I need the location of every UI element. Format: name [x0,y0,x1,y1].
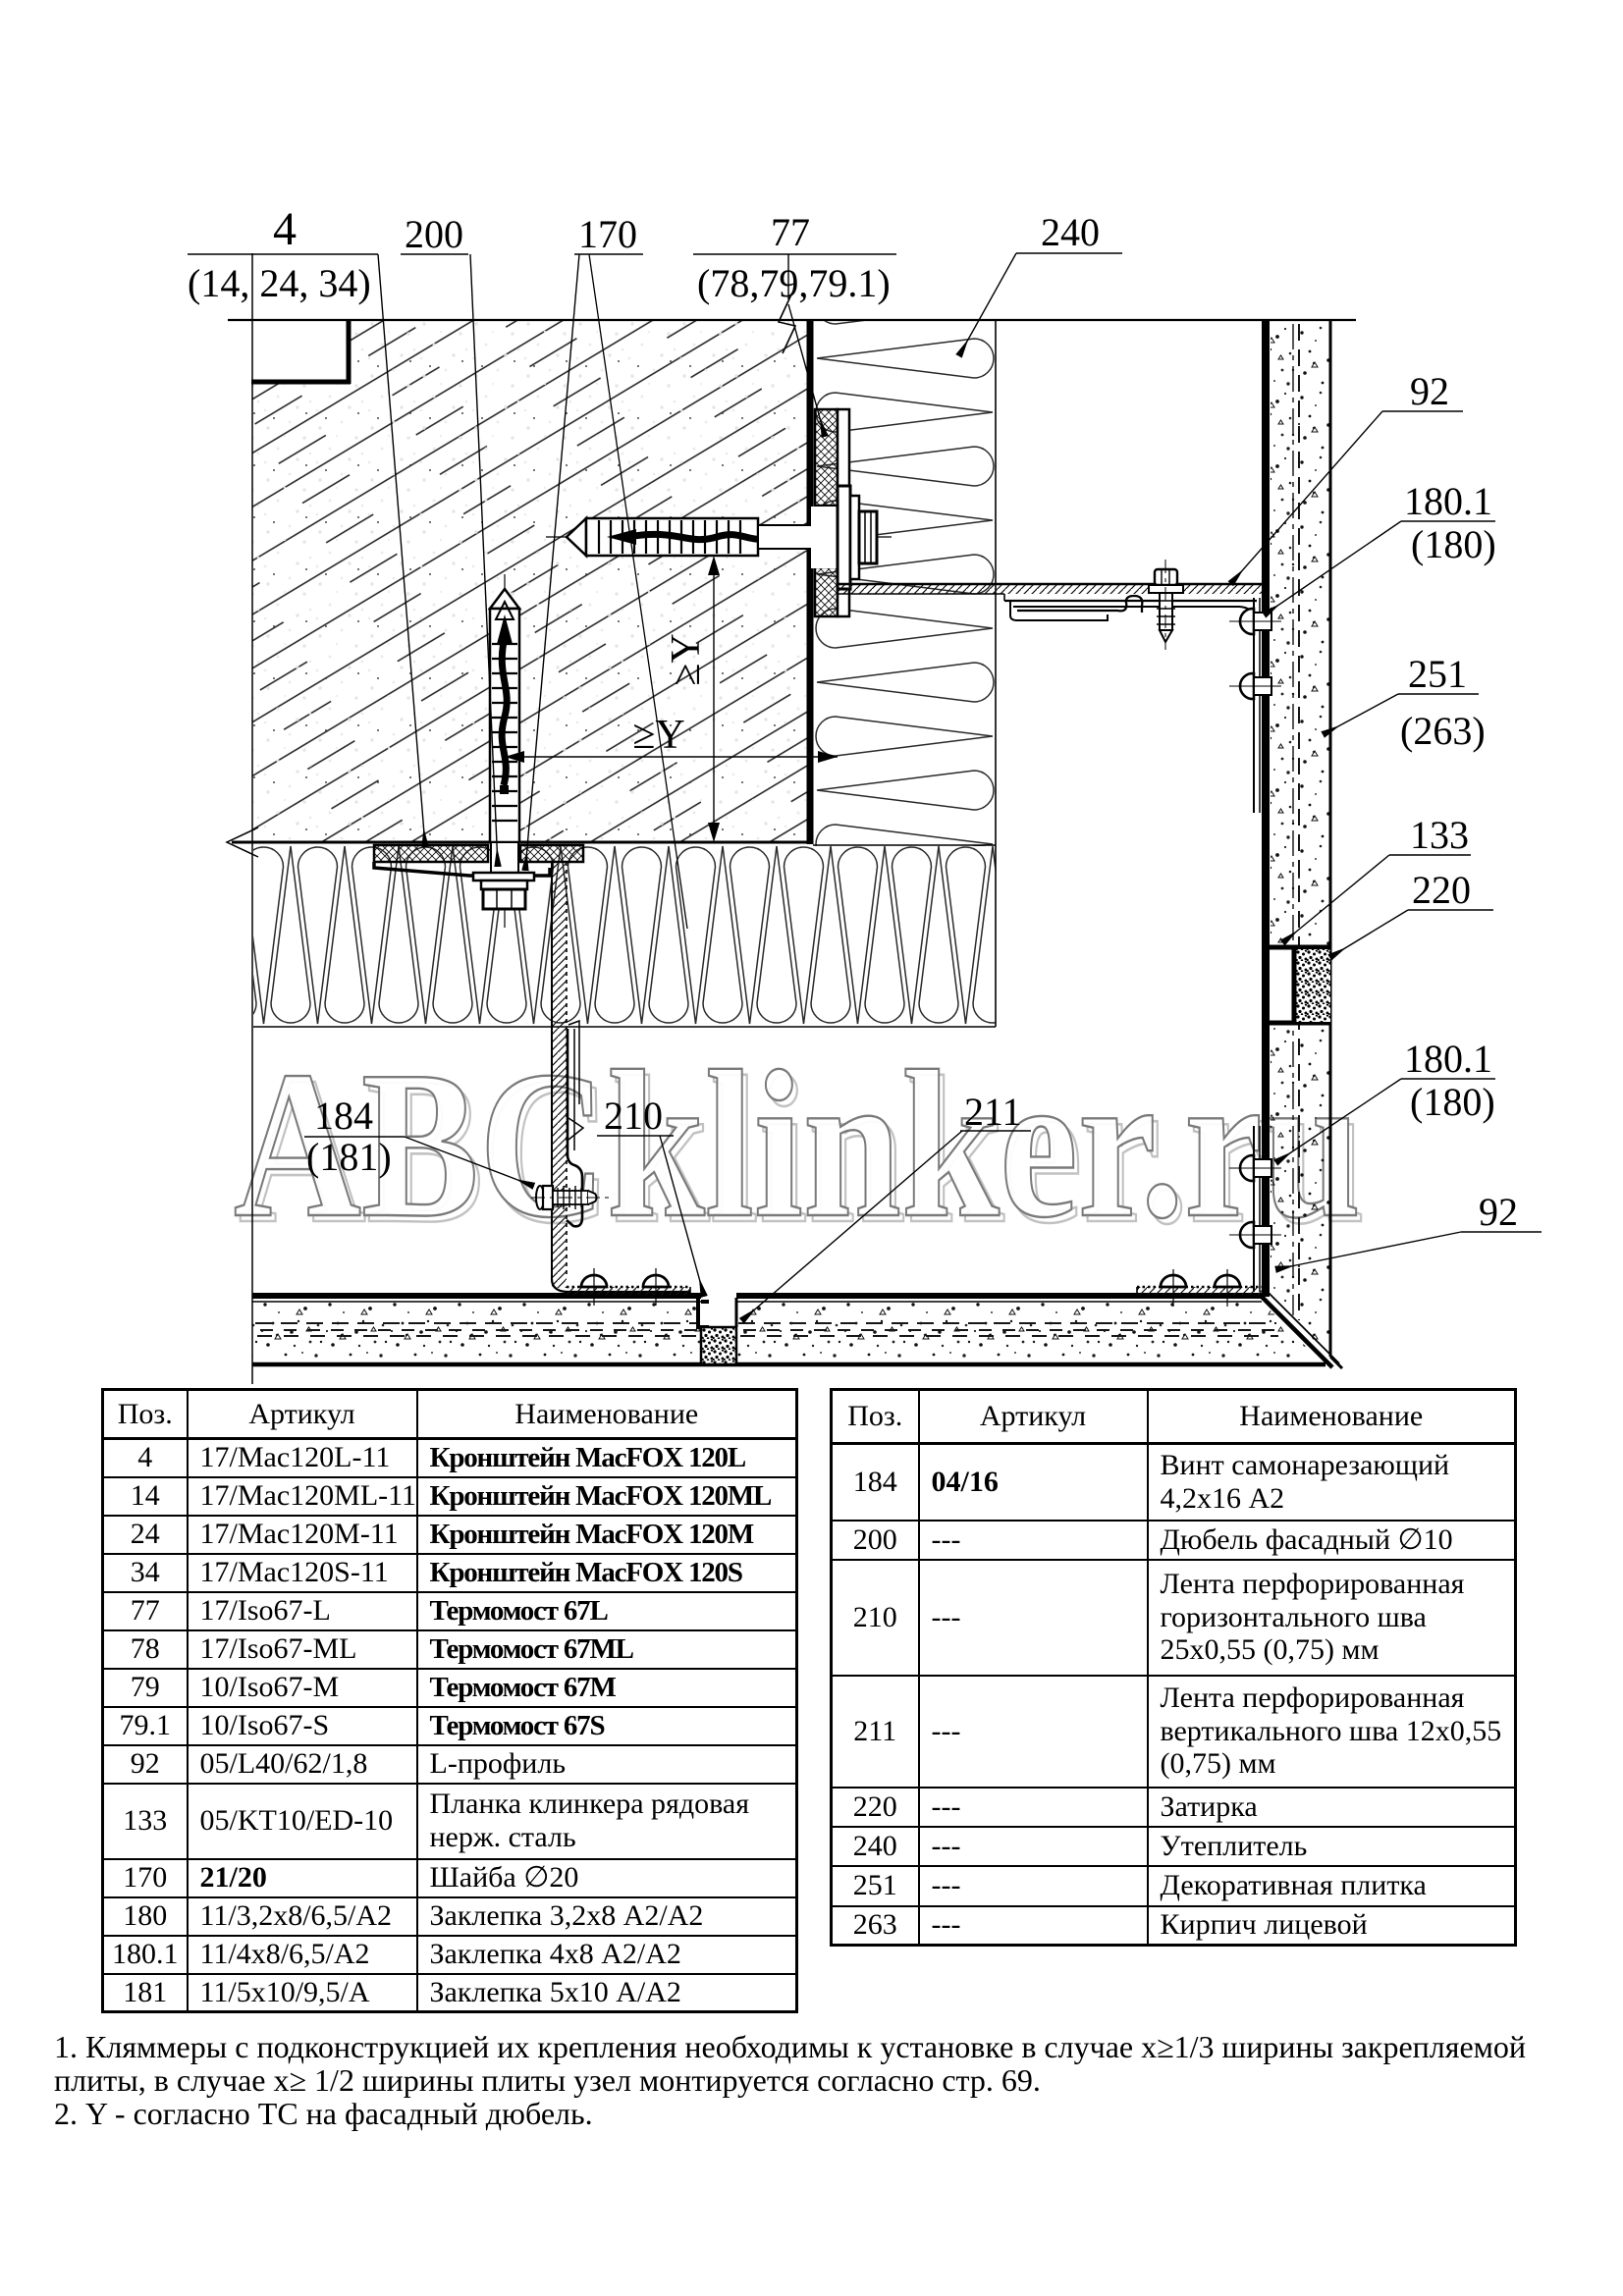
svg-text:184: 184 [314,1094,373,1138]
svg-text:(180): (180) [1410,1080,1495,1124]
svg-text:133: 133 [1410,813,1469,857]
svg-text:(181): (181) [306,1135,392,1179]
svg-text:251: 251 [1408,652,1467,696]
svg-text:(180): (180) [1411,522,1496,566]
svg-text:210: 210 [604,1094,663,1138]
svg-text:180.1: 180.1 [1404,1037,1492,1081]
svg-text:ABCklinker.ru: ABCklinker.ru [234,1027,1361,1261]
svg-text:(78,79,79.1): (78,79,79.1) [697,261,891,305]
svg-text:≥Y: ≥Y [664,633,709,685]
svg-text:92: 92 [1410,369,1449,413]
svg-text:(263): (263) [1400,709,1486,753]
svg-text:77: 77 [771,210,810,254]
svg-text:220: 220 [1412,868,1471,912]
svg-text:211: 211 [964,1090,1022,1134]
svg-text:240: 240 [1041,210,1100,254]
svg-text:92: 92 [1479,1190,1518,1234]
svg-text:(14, 24, 34): (14, 24, 34) [188,261,371,305]
svg-text:200: 200 [405,212,463,256]
svg-text:170: 170 [578,212,637,256]
svg-text:4: 4 [273,203,297,255]
svg-text:180.1: 180.1 [1404,479,1492,523]
